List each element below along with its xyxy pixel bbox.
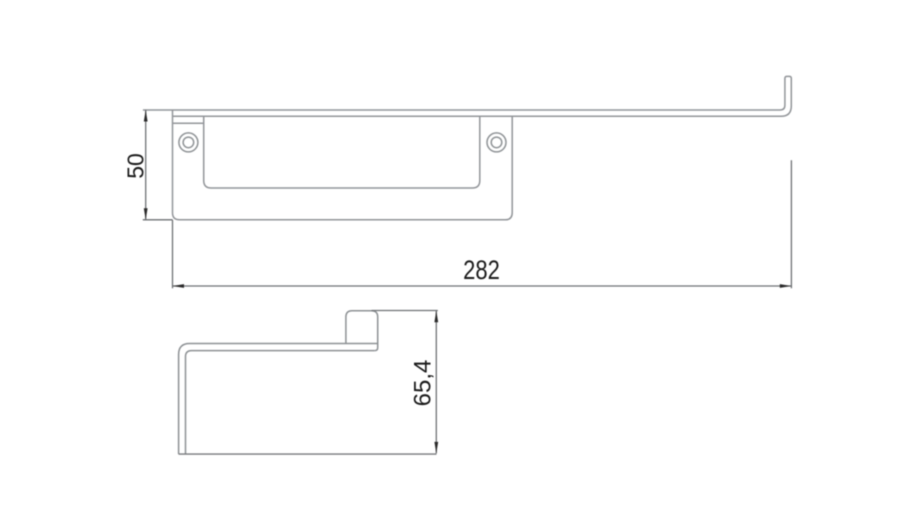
svg-text:50: 50 — [123, 153, 149, 179]
svg-text:282: 282 — [463, 256, 500, 285]
svg-text:65,4: 65,4 — [410, 360, 437, 407]
